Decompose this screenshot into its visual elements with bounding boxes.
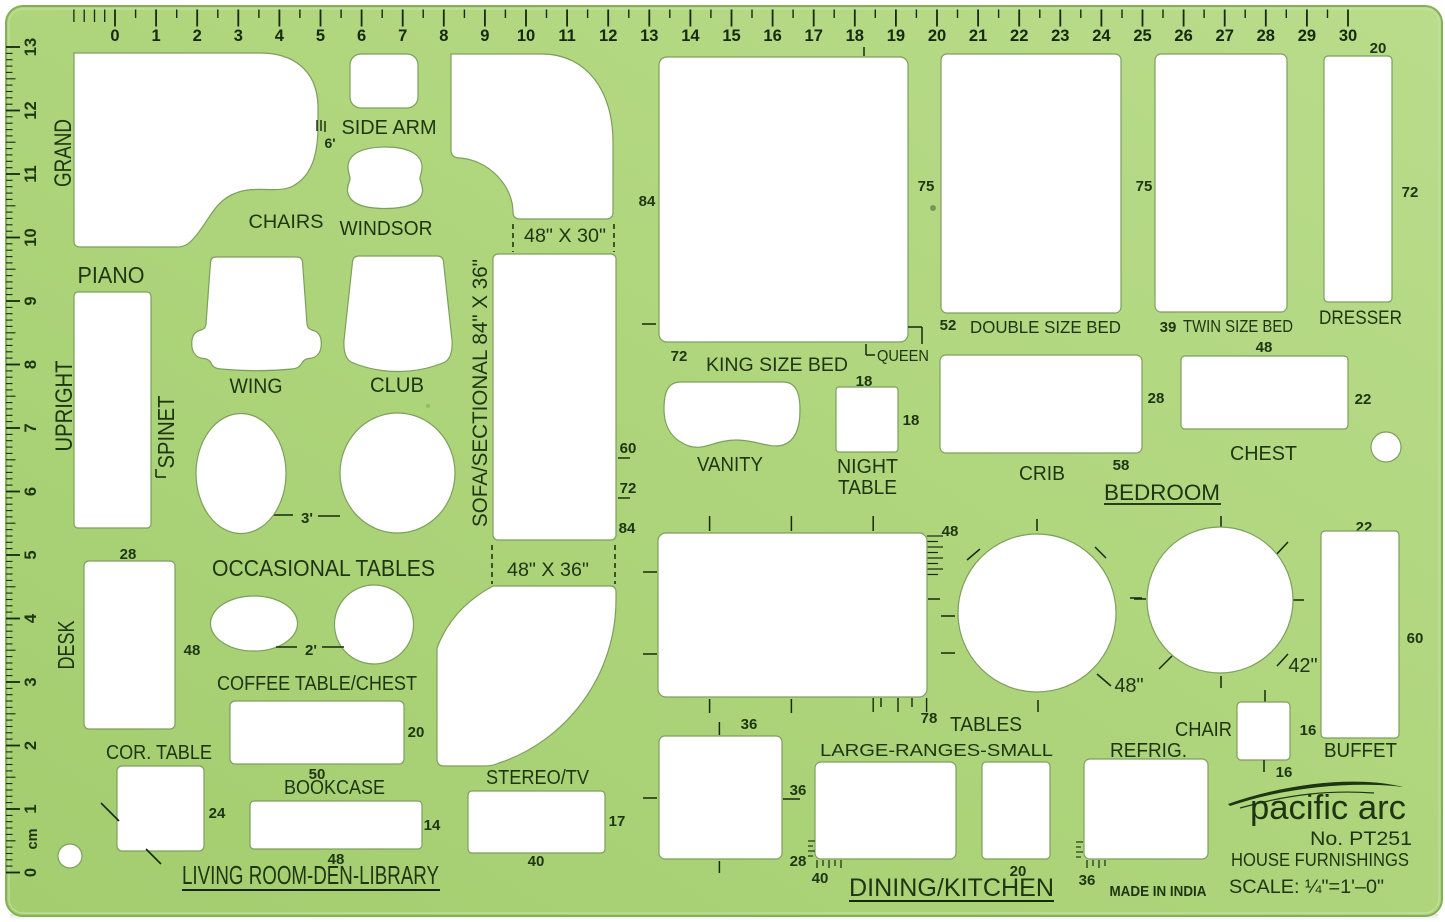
svg-text:LIVING ROOM-DEN-LIBRARY: LIVING ROOM-DEN-LIBRARY bbox=[182, 860, 439, 890]
svg-text:WING: WING bbox=[230, 375, 283, 398]
svg-text:22: 22 bbox=[1355, 391, 1372, 408]
svg-text:10: 10 bbox=[22, 228, 40, 246]
svg-text:pacific arc: pacific arc bbox=[1250, 789, 1406, 827]
svg-text:17: 17 bbox=[805, 27, 823, 45]
svg-text:20: 20 bbox=[408, 724, 425, 741]
svg-text:84: 84 bbox=[639, 193, 656, 210]
svg-text:28: 28 bbox=[1257, 27, 1275, 45]
svg-text:39: 39 bbox=[1160, 319, 1177, 336]
svg-text:48: 48 bbox=[184, 642, 201, 659]
svg-text:84: 84 bbox=[619, 520, 636, 537]
svg-text:BEDROOM: BEDROOM bbox=[1104, 480, 1220, 505]
svg-text:QUEEN: QUEEN bbox=[877, 348, 929, 365]
svg-text:3': 3' bbox=[301, 510, 313, 527]
svg-text:40: 40 bbox=[528, 853, 545, 870]
svg-text:SIDE ARM: SIDE ARM bbox=[342, 117, 437, 139]
svg-text:CRIB: CRIB bbox=[1019, 463, 1065, 485]
svg-text:27: 27 bbox=[1216, 27, 1234, 45]
svg-text:24: 24 bbox=[1092, 27, 1111, 45]
svg-text:21: 21 bbox=[969, 27, 987, 45]
svg-text:LARGE-RANGES-SMALL: LARGE-RANGES-SMALL bbox=[820, 740, 1053, 760]
svg-text:60: 60 bbox=[1407, 630, 1424, 647]
svg-text:48" X 36": 48" X 36" bbox=[507, 560, 589, 581]
svg-text:26: 26 bbox=[1174, 27, 1192, 45]
svg-text:16: 16 bbox=[1300, 722, 1317, 739]
svg-text:TWIN SIZE BED: TWIN SIZE BED bbox=[1183, 316, 1293, 336]
svg-text:8: 8 bbox=[439, 27, 448, 45]
svg-text:22: 22 bbox=[1010, 27, 1028, 45]
svg-text:13: 13 bbox=[640, 27, 658, 45]
svg-text:58: 58 bbox=[1113, 457, 1130, 474]
svg-text:78: 78 bbox=[921, 710, 938, 727]
svg-text:4: 4 bbox=[275, 27, 285, 45]
svg-text:5: 5 bbox=[316, 27, 325, 45]
svg-text:NIGHT: NIGHT bbox=[837, 456, 898, 478]
svg-text:30: 30 bbox=[1339, 27, 1357, 45]
svg-text:BUFFET: BUFFET bbox=[1324, 740, 1397, 762]
svg-text:CHAIR: CHAIR bbox=[1175, 719, 1232, 741]
svg-text:3: 3 bbox=[234, 27, 243, 45]
svg-text:No. PT251: No. PT251 bbox=[1310, 828, 1412, 850]
svg-text:CLUB: CLUB bbox=[370, 374, 424, 397]
svg-text:DOUBLE SIZE BED: DOUBLE SIZE BED bbox=[970, 317, 1121, 337]
svg-text:2': 2' bbox=[305, 642, 317, 659]
svg-text:36: 36 bbox=[790, 782, 807, 799]
svg-text:3: 3 bbox=[22, 677, 40, 686]
svg-text:COR. TABLE: COR. TABLE bbox=[106, 742, 212, 764]
svg-text:23: 23 bbox=[1051, 27, 1069, 45]
svg-text:STEREO/TV: STEREO/TV bbox=[486, 767, 590, 789]
svg-text:0: 0 bbox=[22, 868, 40, 877]
svg-text:BOOKCASE: BOOKCASE bbox=[284, 777, 385, 799]
svg-text:SCALE: ¼"=1'–0": SCALE: ¼"=1'–0" bbox=[1229, 877, 1384, 898]
svg-text:15: 15 bbox=[722, 27, 740, 45]
svg-text:UPRIGHT: UPRIGHT bbox=[51, 360, 78, 451]
svg-text:0: 0 bbox=[110, 27, 119, 45]
svg-text:5: 5 bbox=[22, 550, 40, 559]
svg-text:36: 36 bbox=[1079, 872, 1096, 889]
svg-text:28: 28 bbox=[790, 853, 807, 870]
svg-text:42": 42" bbox=[1288, 655, 1317, 677]
svg-text:VANITY: VANITY bbox=[697, 454, 763, 476]
svg-text:14: 14 bbox=[681, 27, 700, 45]
svg-text:20: 20 bbox=[1370, 40, 1387, 57]
svg-text:2: 2 bbox=[193, 27, 202, 45]
svg-text:75: 75 bbox=[1136, 178, 1153, 195]
svg-text:HOUSE FURNISHINGS: HOUSE FURNISHINGS bbox=[1231, 850, 1409, 870]
svg-text:48: 48 bbox=[942, 523, 959, 540]
svg-text:7: 7 bbox=[398, 27, 407, 45]
svg-text:28: 28 bbox=[1148, 390, 1165, 407]
svg-text:29: 29 bbox=[1298, 27, 1316, 45]
svg-text:13: 13 bbox=[22, 38, 40, 56]
svg-text:48" X 30": 48" X 30" bbox=[524, 226, 606, 247]
svg-text:DESK: DESK bbox=[53, 620, 79, 670]
svg-text:6: 6 bbox=[22, 487, 40, 496]
svg-text:36: 36 bbox=[741, 716, 758, 733]
svg-text:KING SIZE BED: KING SIZE BED bbox=[706, 354, 848, 376]
svg-text:CHAIRS: CHAIRS bbox=[249, 212, 324, 233]
svg-text:SPINET: SPINET bbox=[153, 396, 179, 469]
svg-text:48": 48" bbox=[1114, 675, 1143, 697]
svg-text:72: 72 bbox=[671, 348, 688, 365]
svg-text:75: 75 bbox=[918, 178, 935, 195]
svg-text:6': 6' bbox=[324, 135, 335, 151]
svg-text:cm: cm bbox=[25, 829, 41, 850]
svg-text:11: 11 bbox=[22, 165, 40, 182]
svg-text:TABLE: TABLE bbox=[838, 477, 897, 499]
svg-text:6: 6 bbox=[357, 27, 366, 45]
svg-text:18: 18 bbox=[903, 412, 920, 429]
svg-text:16: 16 bbox=[763, 27, 781, 45]
svg-text:10: 10 bbox=[517, 27, 535, 45]
svg-text:DRESSER: DRESSER bbox=[1319, 307, 1402, 329]
svg-text:CHEST: CHEST bbox=[1230, 443, 1297, 465]
svg-text:OCCASIONAL TABLES: OCCASIONAL TABLES bbox=[212, 555, 435, 581]
svg-text:1: 1 bbox=[152, 27, 161, 45]
svg-text:8: 8 bbox=[22, 360, 40, 369]
svg-text:52: 52 bbox=[940, 317, 957, 334]
svg-text:40: 40 bbox=[812, 870, 829, 887]
svg-text:2: 2 bbox=[22, 741, 40, 750]
svg-text:12: 12 bbox=[22, 101, 40, 119]
svg-text:SOFA/SECTIONAL 84" X 36": SOFA/SECTIONAL 84" X 36" bbox=[469, 259, 492, 527]
svg-text:WINDSOR: WINDSOR bbox=[340, 218, 433, 240]
svg-text:1: 1 bbox=[22, 804, 40, 813]
svg-text:25: 25 bbox=[1133, 27, 1151, 45]
svg-text:TABLES: TABLES bbox=[950, 714, 1022, 736]
svg-text:19: 19 bbox=[887, 27, 905, 45]
svg-text:17: 17 bbox=[609, 813, 626, 830]
svg-text:9: 9 bbox=[480, 27, 489, 45]
svg-text:72: 72 bbox=[620, 480, 637, 497]
svg-text:16: 16 bbox=[1276, 764, 1293, 781]
svg-text:24: 24 bbox=[209, 805, 226, 822]
svg-text:COFFEE TABLE/CHEST: COFFEE TABLE/CHEST bbox=[217, 673, 417, 695]
svg-text:60: 60 bbox=[620, 440, 637, 457]
svg-text:4: 4 bbox=[22, 613, 40, 623]
svg-text:20: 20 bbox=[928, 27, 946, 45]
svg-text:GRAND: GRAND bbox=[50, 119, 77, 187]
svg-text:14: 14 bbox=[424, 817, 441, 834]
svg-text:DINING/KITCHEN: DINING/KITCHEN bbox=[849, 874, 1054, 902]
svg-text:11: 11 bbox=[558, 27, 575, 45]
svg-text:PIANO: PIANO bbox=[78, 262, 145, 288]
svg-text:9: 9 bbox=[22, 296, 40, 305]
svg-text:18: 18 bbox=[846, 27, 864, 45]
svg-text:7: 7 bbox=[22, 423, 40, 432]
svg-text:MADE IN INDIA: MADE IN INDIA bbox=[1110, 883, 1207, 900]
svg-text:48: 48 bbox=[1256, 339, 1273, 356]
svg-text:12: 12 bbox=[599, 27, 617, 45]
svg-text:72: 72 bbox=[1402, 184, 1419, 201]
